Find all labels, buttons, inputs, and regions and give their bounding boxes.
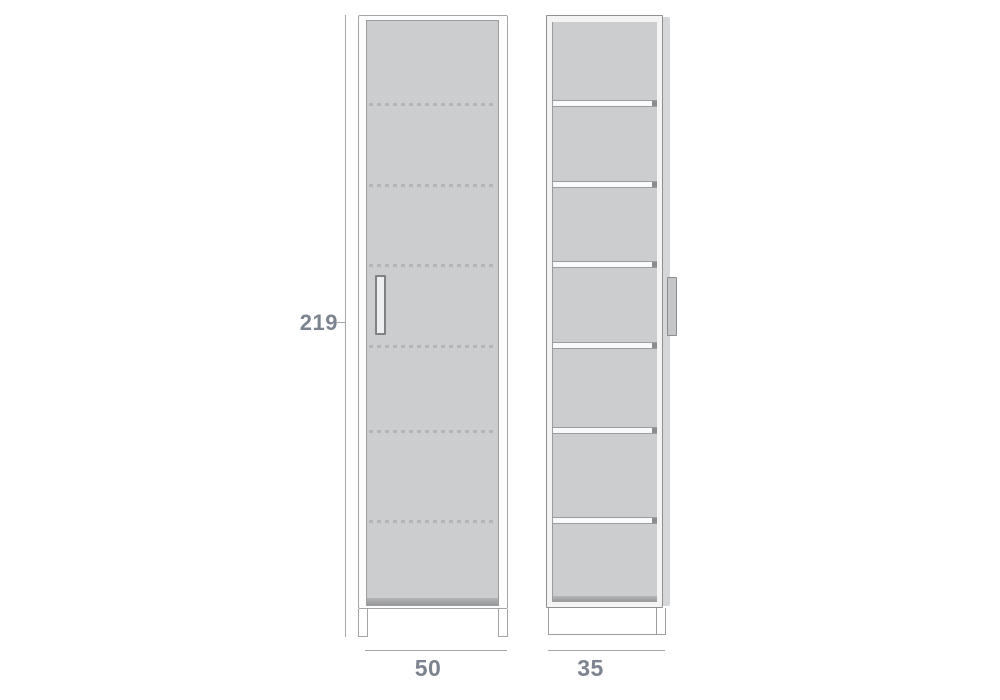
- side-view-plinth: [548, 608, 666, 635]
- shelf-pin: [652, 101, 657, 106]
- side-view-interior: [552, 22, 657, 602]
- dashed-shelf-line: [369, 184, 496, 187]
- front-view-left-leg: [358, 609, 368, 637]
- shelf-line: [553, 427, 657, 434]
- front-view-cabinet-frame: [358, 15, 508, 609]
- shelf-line: [553, 517, 657, 524]
- front-width-dimension-label: 50: [365, 655, 491, 681]
- shelf-pin: [652, 262, 657, 267]
- door-bottom-edge-shade: [367, 598, 498, 605]
- height-dimension-label: 219: [288, 310, 338, 336]
- furniture-dimension-diagram: 219 50 35: [0, 0, 1000, 700]
- height-dimension-tick: [337, 322, 345, 323]
- front-view-cabinet-door: [366, 20, 499, 606]
- side-view-cabinet-body: [546, 15, 663, 608]
- shelf-line: [553, 100, 657, 107]
- shelf-line: [553, 181, 657, 188]
- dashed-shelf-line: [369, 430, 496, 433]
- front-width-dimension-line: [365, 650, 507, 651]
- shelf-pin: [652, 343, 657, 348]
- dashed-shelf-line: [369, 264, 496, 267]
- shelf-line: [553, 342, 657, 349]
- dashed-shelf-line: [369, 345, 496, 348]
- shelf-pin: [652, 518, 657, 523]
- dashed-shelf-line: [369, 103, 496, 106]
- dashed-shelf-line: [369, 520, 496, 523]
- side-view-door-handle: [667, 277, 677, 336]
- shelf-line: [553, 261, 657, 268]
- front-view-right-leg: [498, 609, 508, 637]
- plinth-leg-line: [656, 608, 657, 634]
- shelf-pin: [652, 428, 657, 433]
- side-bottom-edge-shade: [553, 596, 657, 602]
- height-dimension-line: [345, 15, 346, 637]
- shelf-pin: [652, 182, 657, 187]
- door-handle: [375, 275, 386, 335]
- side-depth-dimension-line: [548, 650, 665, 651]
- side-depth-dimension-label: 35: [548, 655, 633, 681]
